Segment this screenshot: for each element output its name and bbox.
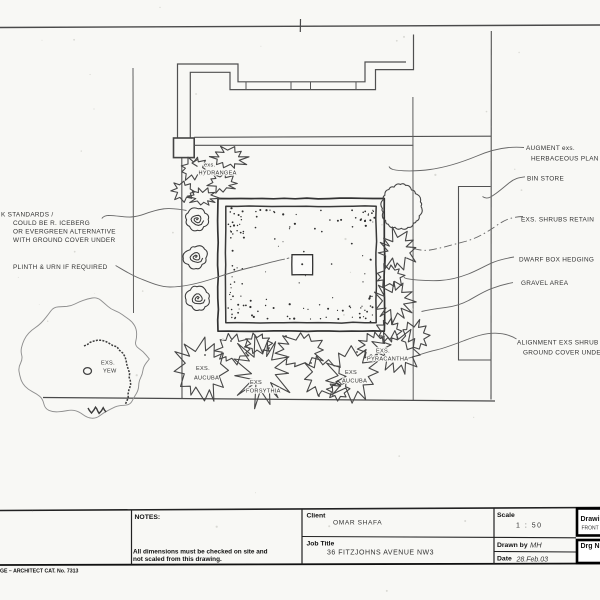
svg-text:Date: Date: [497, 556, 512, 563]
svg-text:AUGMENT exs.: AUGMENT exs.: [526, 145, 575, 152]
svg-text:GROUND COVER UNDE: GROUND COVER UNDE: [523, 350, 600, 357]
svg-text:K STANDARDS /: K STANDARDS /: [1, 212, 53, 219]
svg-text:Drg N: Drg N: [581, 543, 600, 550]
svg-text:WITH GROUND COVER UNDER: WITH GROUND COVER UNDER: [13, 237, 115, 244]
svg-text:Client: Client: [307, 513, 327, 520]
svg-text:AUCUBA: AUCUBA: [194, 376, 219, 382]
svg-text:EXS. SHRUBS RETAIN: EXS. SHRUBS RETAIN: [521, 217, 594, 224]
svg-text:BIN STORE: BIN STORE: [527, 176, 564, 183]
svg-text:36 FITZJOHNS AVENUE NW3: 36 FITZJOHNS AVENUE NW3: [327, 550, 434, 557]
svg-text:EXS: EXS: [250, 380, 262, 386]
svg-text:GRAVEL AREA: GRAVEL AREA: [521, 280, 569, 287]
svg-text:1 : 50: 1 : 50: [516, 523, 543, 530]
svg-text:EXS: EXS: [345, 370, 357, 376]
svg-text:Drawin: Drawin: [581, 516, 600, 523]
svg-text:PYRACANTHA: PYRACANTHA: [367, 357, 408, 363]
svg-text:EXS.: EXS.: [376, 349, 390, 355]
svg-text:PLINTH & URN IF REQUIRED: PLINTH & URN IF REQUIRED: [13, 264, 108, 271]
svg-text:Drawn by: Drawn by: [497, 542, 528, 549]
svg-text:MH: MH: [530, 541, 542, 550]
svg-text:EXS.: EXS.: [196, 366, 210, 372]
svg-text:AUCUBA: AUCUBA: [342, 379, 367, 385]
svg-text:NOTES:: NOTES:: [135, 514, 161, 521]
svg-text:exs.: exs.: [204, 163, 216, 169]
svg-text:COULD BE R. ICEBERG: COULD BE R. ICEBERG: [13, 220, 90, 227]
svg-text:EXS.: EXS.: [101, 361, 115, 367]
svg-text:HYDRANGEA: HYDRANGEA: [199, 171, 237, 177]
svg-text:GE – ARCHITECT CAT. No. 7313: GE – ARCHITECT CAT. No. 7313: [0, 569, 79, 575]
svg-text:Scale: Scale: [497, 512, 515, 519]
svg-text:not scaled from this drawing.: not scaled from this drawing.: [133, 556, 222, 563]
svg-text:YEW: YEW: [103, 369, 117, 375]
svg-text:OMAR SHAFA: OMAR SHAFA: [333, 520, 382, 527]
svg-text:OR EVERGREEN ALTERNATIVE: OR EVERGREEN ALTERNATIVE: [13, 229, 116, 236]
svg-text:DWARF BOX HEDGING: DWARF BOX HEDGING: [519, 257, 594, 264]
svg-text:All dimensions must be checked: All dimensions must be checked on site a…: [133, 549, 268, 556]
svg-text:FORSYTHIA: FORSYTHIA: [246, 389, 281, 395]
svg-text:HERBACEOUS PLAN: HERBACEOUS PLAN: [531, 156, 599, 163]
svg-text:Job Title: Job Title: [307, 541, 335, 548]
svg-text:ALIGNMENT EXS SHRUB: ALIGNMENT EXS SHRUB: [517, 340, 599, 347]
svg-text:28.Feb.03: 28.Feb.03: [516, 557, 549, 564]
svg-text:FRONT G: FRONT G: [582, 526, 600, 532]
